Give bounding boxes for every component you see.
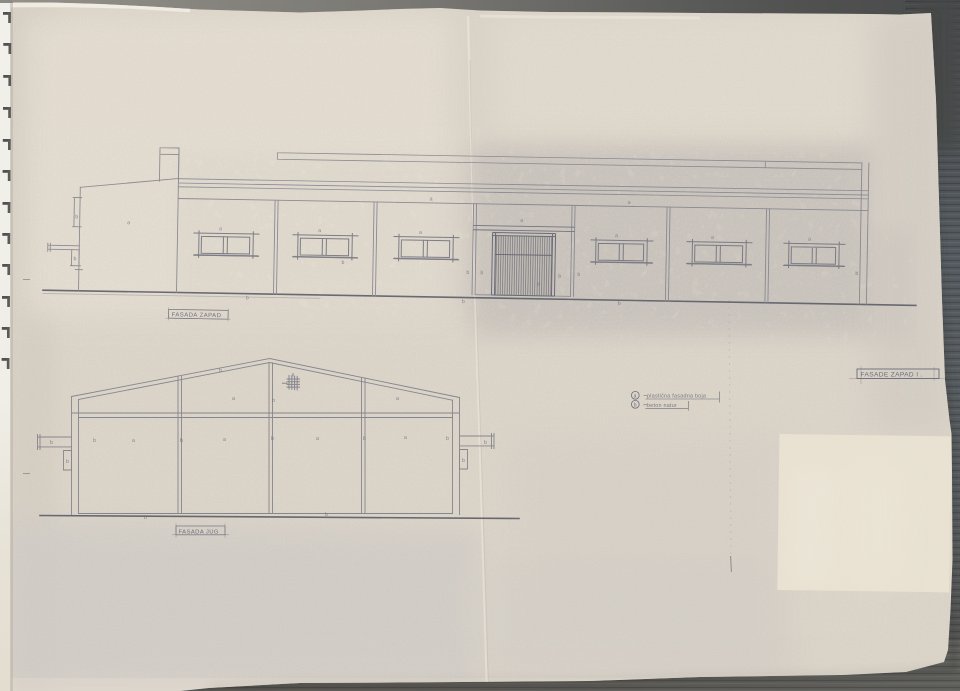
svg-text:b: b bbox=[618, 301, 621, 307]
svg-text:beton natur: beton natur bbox=[647, 403, 677, 409]
svg-text:b: b bbox=[50, 440, 53, 446]
svg-text:b: b bbox=[558, 274, 561, 280]
svg-text:a: a bbox=[318, 228, 321, 234]
svg-text:a: a bbox=[404, 435, 407, 441]
svg-text:a: a bbox=[628, 200, 631, 206]
svg-text:a: a bbox=[219, 226, 222, 232]
svg-text:b: b bbox=[93, 438, 96, 444]
svg-text:a: a bbox=[316, 436, 319, 442]
svg-text:a: a bbox=[520, 218, 523, 224]
svg-text:b: b bbox=[74, 256, 77, 262]
svg-text:a: a bbox=[711, 235, 714, 241]
svg-text:b: b bbox=[246, 295, 249, 301]
svg-text:b: b bbox=[66, 459, 69, 465]
svg-text:b: b bbox=[462, 458, 465, 464]
svg-text:b: b bbox=[272, 398, 275, 404]
svg-text:b: b bbox=[325, 512, 328, 518]
svg-text:a: a bbox=[232, 396, 235, 402]
svg-text:b: b bbox=[271, 436, 274, 442]
svg-text:a: a bbox=[396, 396, 399, 402]
svg-text:a: a bbox=[127, 220, 130, 226]
svg-text:b: b bbox=[446, 436, 449, 442]
svg-text:a: a bbox=[132, 438, 135, 444]
svg-text:b: b bbox=[577, 272, 580, 278]
svg-text:b: b bbox=[466, 270, 469, 276]
svg-text:plastična fasadna boja: plastična fasadna boja bbox=[647, 394, 706, 400]
svg-text:FASADE ZAPAD I .: FASADE ZAPAD I . bbox=[861, 372, 923, 379]
svg-text:a: a bbox=[634, 394, 637, 400]
svg-text:a: a bbox=[430, 196, 433, 202]
svg-text:b: b bbox=[462, 299, 465, 305]
svg-text:a: a bbox=[615, 233, 618, 239]
svg-text:a: a bbox=[223, 437, 226, 443]
svg-text:b: b bbox=[855, 271, 858, 277]
svg-text:FASADA JUG: FASADA JUG bbox=[179, 529, 219, 535]
svg-text:b: b bbox=[363, 436, 366, 442]
svg-text:b: b bbox=[180, 438, 183, 444]
svg-text:a: a bbox=[537, 281, 540, 287]
svg-text:b: b bbox=[634, 403, 637, 409]
svg-text:b: b bbox=[484, 440, 487, 446]
svg-text:b: b bbox=[341, 260, 344, 266]
svg-text:b: b bbox=[75, 214, 78, 220]
svg-text:a: a bbox=[419, 230, 422, 236]
svg-text:b: b bbox=[219, 368, 222, 374]
svg-text:b: b bbox=[480, 270, 483, 276]
svg-text:b: b bbox=[144, 515, 147, 521]
svg-text:a: a bbox=[808, 237, 811, 243]
